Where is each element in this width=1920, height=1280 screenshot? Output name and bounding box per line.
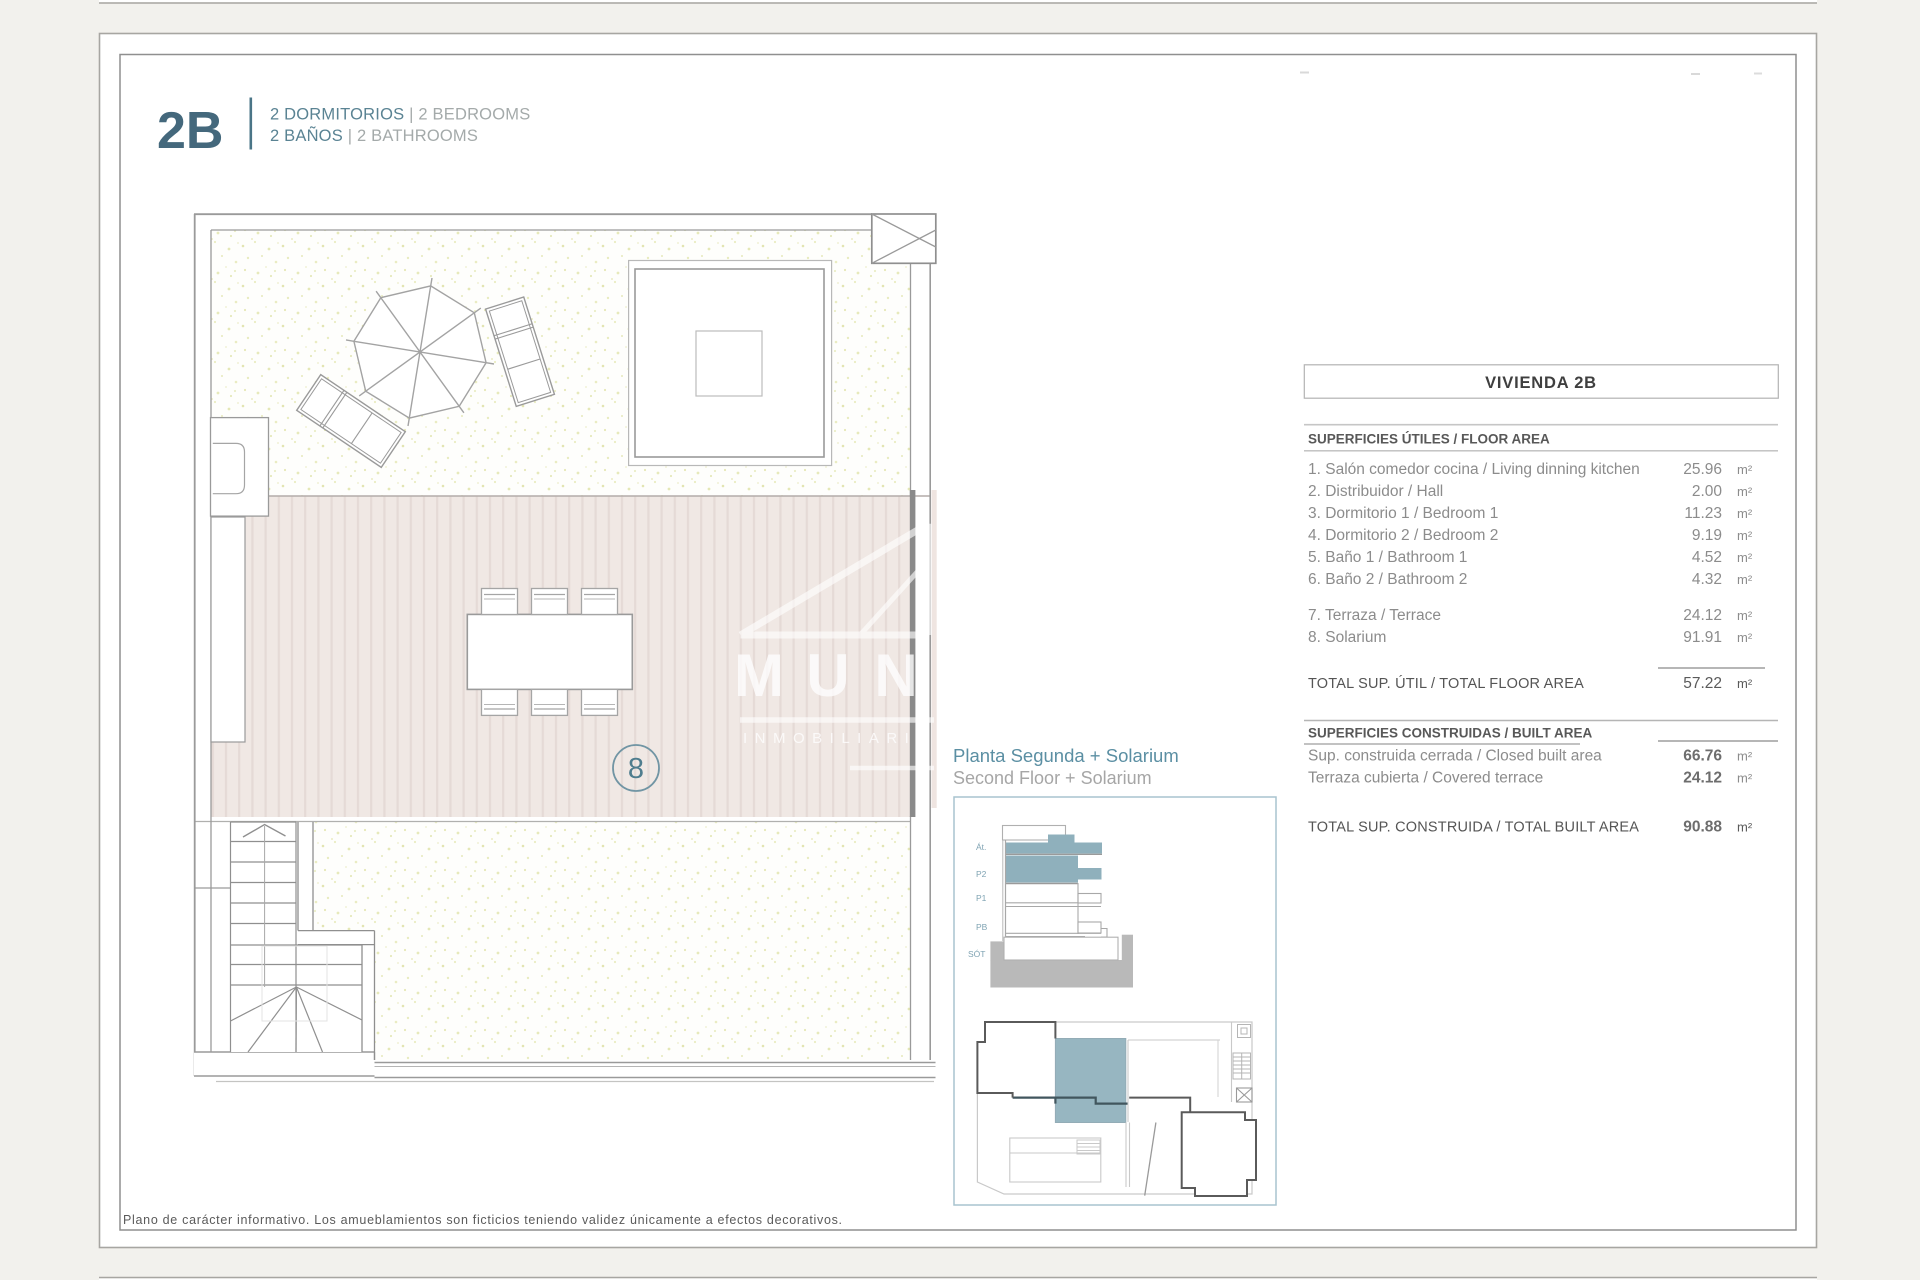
svg-text:91.91: 91.91 [1683, 629, 1722, 646]
svg-text:4.52: 4.52 [1692, 549, 1722, 566]
svg-text:m²: m² [1737, 506, 1753, 521]
svg-text:VIVIENDA 2B: VIVIENDA 2B [1485, 374, 1597, 392]
svg-text:66.76: 66.76 [1683, 748, 1722, 765]
svg-text:11.23: 11.23 [1684, 505, 1722, 522]
svg-text:Sup. construida cerrada / Clos: Sup. construida cerrada / Closed built a… [1308, 748, 1602, 765]
svg-text:N: N [874, 642, 917, 709]
svg-text:P1: P1 [976, 893, 987, 903]
svg-text:Plano de carácter informativo.: Plano de carácter informativo. Los amueb… [123, 1213, 843, 1227]
svg-text:7. Terraza / Terrace: 7. Terraza / Terrace [1308, 607, 1441, 624]
svg-text:m²: m² [1737, 630, 1753, 645]
svg-text:57.22: 57.22 [1683, 675, 1722, 692]
svg-text:6. Baño 2 / Bathroom 2: 6. Baño 2 / Bathroom 2 [1308, 571, 1467, 588]
svg-text:90.88: 90.88 [1683, 819, 1722, 836]
svg-text:8: 8 [628, 753, 644, 785]
svg-text:2 DORMITORIOS | 2 BEDROOMS: 2 DORMITORIOS | 2 BEDROOMS [270, 106, 530, 124]
svg-text:2B: 2B [157, 102, 223, 160]
svg-text:24.12: 24.12 [1683, 770, 1722, 787]
svg-text:INMOBILIARIA: INMOBILIARIA [743, 730, 934, 747]
svg-text:2.00: 2.00 [1692, 483, 1723, 500]
svg-text:8. Solarium: 8. Solarium [1308, 629, 1386, 646]
svg-text:4.32: 4.32 [1692, 571, 1722, 588]
svg-text:m²: m² [1737, 484, 1753, 499]
svg-text:24.12: 24.12 [1683, 607, 1722, 624]
svg-text:m²: m² [1737, 820, 1753, 835]
svg-text:P2: P2 [976, 869, 987, 879]
svg-text:2 BAÑOS | 2 BATHROOMS: 2 BAÑOS | 2 BATHROOMS [270, 125, 478, 145]
svg-text:PB: PB [976, 922, 988, 932]
svg-text:SUPERFICIES CONSTRUIDAS / BUIL: SUPERFICIES CONSTRUIDAS / BUILT AREA [1308, 726, 1593, 741]
svg-text:9.19: 9.19 [1692, 527, 1722, 544]
svg-text:Át.: Át. [976, 842, 986, 852]
svg-text:U: U [806, 642, 849, 709]
svg-text:m²: m² [1737, 676, 1753, 691]
svg-text:m²: m² [1737, 771, 1753, 786]
svg-text:TOTAL SUP. ÚTIL / TOTAL FLOOR: TOTAL SUP. ÚTIL / TOTAL FLOOR AREA [1308, 675, 1584, 692]
svg-text:TOTAL SUP. CONSTRUIDA / TOTAL: TOTAL SUP. CONSTRUIDA / TOTAL BUILT AREA [1308, 820, 1639, 836]
svg-text:M: M [734, 642, 784, 709]
svg-text:25.96: 25.96 [1683, 461, 1722, 478]
svg-text:m²: m² [1737, 462, 1753, 477]
svg-text:Planta Segunda + Solarium: Planta Segunda + Solarium [953, 745, 1179, 766]
svg-text:4. Dormitorio 2 / Bedroom 2: 4. Dormitorio 2 / Bedroom 2 [1308, 527, 1498, 544]
svg-text:m²: m² [1737, 608, 1753, 623]
svg-text:SÓT: SÓT [968, 949, 985, 959]
svg-text:m²: m² [1737, 528, 1753, 543]
svg-text:m²: m² [1737, 572, 1753, 587]
svg-text:2. Distribuidor / Hall: 2. Distribuidor / Hall [1308, 483, 1443, 500]
svg-text:Second Floor + Solarium: Second Floor + Solarium [953, 768, 1152, 788]
svg-text:Terraza cubierta / Covered ter: Terraza cubierta / Covered terrace [1308, 770, 1543, 787]
svg-text:m²: m² [1737, 550, 1753, 565]
svg-text:3. Dormitorio 1 / Bedroom 1: 3. Dormitorio 1 / Bedroom 1 [1308, 505, 1498, 522]
svg-text:m²: m² [1737, 749, 1753, 764]
svg-text:SUPERFICIES ÚTILES / FLOOR ARE: SUPERFICIES ÚTILES / FLOOR AREA [1308, 432, 1550, 447]
svg-text:5. Baño 1 / Bathroom 1: 5. Baño 1 / Bathroom 1 [1308, 549, 1467, 566]
svg-text:1. Salón comedor cocina / Livi: 1. Salón comedor cocina / Living dinning… [1308, 461, 1640, 478]
